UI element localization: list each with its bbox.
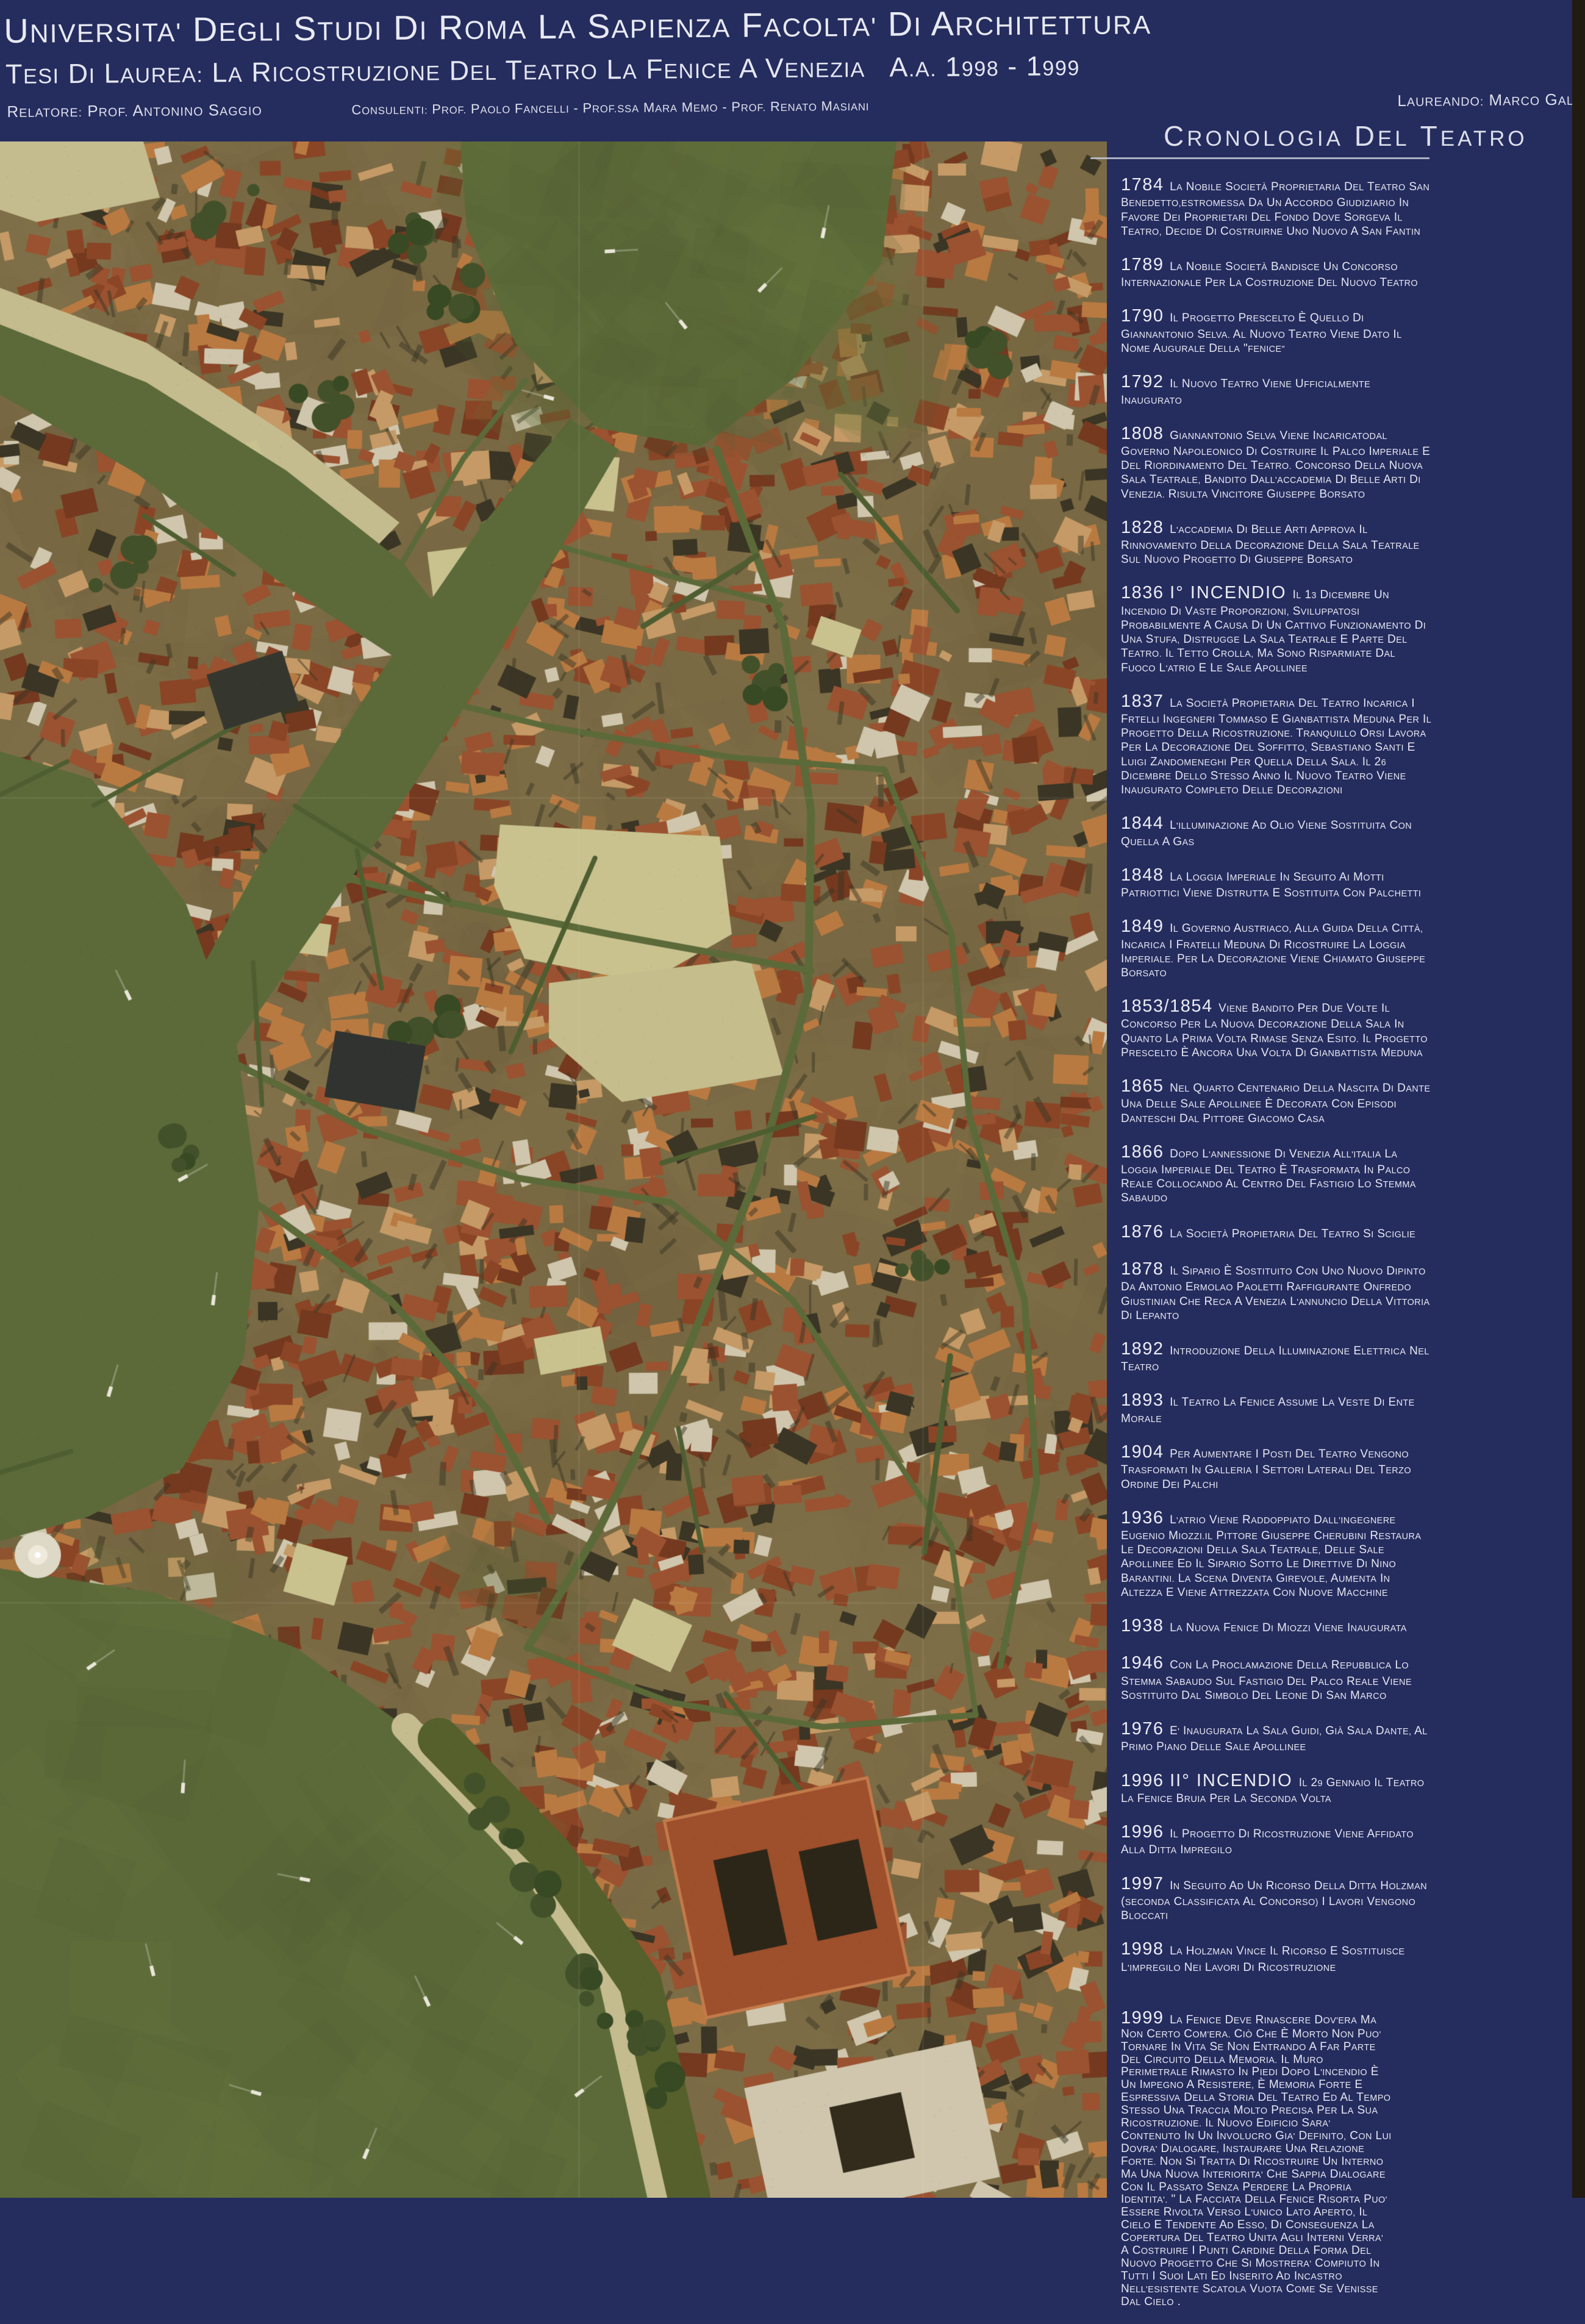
entry-year: 1790	[1121, 306, 1170, 326]
poster-right-edge	[1572, 0, 1585, 2198]
entry-year: 1938	[1121, 1616, 1170, 1636]
entry-year: 1808	[1121, 424, 1170, 443]
entry-year: 1844	[1121, 813, 1170, 833]
chronology-entry: 1996 II° INCENDIO IL 29 GENNAIO IL TEATR…	[1121, 1770, 1433, 1806]
entry-year: 1784	[1121, 175, 1170, 195]
laureando-credit: LAUREANDO: MARCO GALOFARI	[1397, 90, 1585, 110]
entry-year: 1999	[1121, 2008, 1170, 2028]
entry-label: II° INCENDIO	[1170, 1771, 1299, 1790]
entry-text: LA NUOVA FENICE DI MIOZZI VIENE INAUGURA…	[1170, 1621, 1407, 1634]
chronology-entry: 1836 I° INCENDIO IL 13 DICEMBRE UN INCEN…	[1121, 582, 1433, 674]
entry-year: 1848	[1121, 865, 1170, 885]
chronology-entry: 1792 IL NUOVO TEATRO VIENE UFFICIALMENTE…	[1121, 371, 1433, 407]
entry-year: 1996	[1121, 1822, 1170, 1842]
chronology-entry: 1936 L'ATRIO VIENE RADDOPPIATO DALL'INGE…	[1121, 1507, 1433, 1600]
university-title: UNIVERSITA' DEGLI STUDI DI ROMA LA SAPIE…	[4, 2, 1151, 51]
entry-year: 1936	[1121, 1508, 1170, 1528]
entry-text: LA FENICE DEVE RINASCERE DOV'ERA MA NON …	[1121, 2014, 1392, 2308]
entry-year: 1792	[1121, 372, 1170, 392]
chronology-entry: 1876 LA SOCIETÀ PROPIETARIA DEL TEATRO S…	[1121, 1221, 1433, 1243]
thesis-title: TESI DI LAUREA: LA RICOSTRUZIONE DEL TEA…	[5, 50, 1080, 90]
entry-text: LA SOCIETÀ PROPIETARIA DEL TEATRO INCARI…	[1121, 697, 1431, 796]
entry-label: I° INCENDIO	[1170, 583, 1293, 602]
chronology-entry: 1938 LA NUOVA FENICE DI MIOZZI VIENE INA…	[1121, 1615, 1433, 1637]
entry-year: 1946	[1121, 1653, 1170, 1673]
chronology-entry: 1998 LA HOLZMAN VINCE IL RICORSO E SOSTI…	[1121, 1939, 1433, 1975]
chronology-entry: 1892 INTRODUZIONE DELLA ILLUMINAZIONE EL…	[1121, 1339, 1433, 1375]
entry-year: 1865	[1121, 1076, 1170, 1096]
consulenti-credit: CONSULENTI: PROF. PAOLO FANCELLI - PROF.…	[351, 98, 869, 118]
chronology-entry: 1784 LA NOBILE SOCIETÀ PROPRIETARIA DEL …	[1121, 174, 1433, 238]
chronology-entry: 1849 IL GOVERNO AUSTRIACO, ALLA GUIDA DE…	[1121, 916, 1433, 980]
chronology-entry: 1878 IL SIPARIO È SOSTITUITO CON UNO NUO…	[1121, 1259, 1433, 1323]
chronology-entry: 1996 IL PROGETTO DI RICOSTRUZIONE VIENE …	[1121, 1822, 1433, 1857]
chronology-entry: 1844 L'ILLUMINAZIONE AD OLIO VIENE SOSTI…	[1121, 813, 1433, 849]
chronology-entry: 1866 DOPO L'ANNESSIONE DI VENEZIA ALL'IT…	[1121, 1142, 1433, 1206]
entry-year: 1853/1854	[1121, 996, 1218, 1016]
chronology-entry: 1976 E' INAUGURATA LA SALA GUIDI, GIÀ SA…	[1121, 1718, 1433, 1754]
entry-year: 1866	[1121, 1142, 1170, 1162]
chronology-entry: 1853/1854 VIENE BANDITO PER DUE VOLTE IL…	[1121, 996, 1433, 1060]
chronology-list: 1784 LA NOBILE SOCIETÀ PROPRIETARIA DEL …	[1121, 174, 1433, 2324]
chronology-entry: 1789 LA NOBILE SOCIETÀ BANDISCE UN CONCO…	[1121, 254, 1433, 290]
chronology-entry: 1904 PER AUMENTARE I POSTI DEL TEATRO VE…	[1121, 1442, 1433, 1492]
entry-year: 1876	[1121, 1222, 1170, 1242]
title-underline	[1090, 157, 1429, 159]
chronology-entry: 1848 LA LOGGIA IMPERIALE IN SEGUITO AI M…	[1121, 865, 1433, 901]
chronology-title: CRONOLOGIA DEL TEATRO	[1164, 120, 1528, 152]
chronology-entry: 1790 IL PROGETTO PRESCELTO È QUELLO DI G…	[1121, 306, 1433, 356]
chronology-entry: 1837 LA SOCIETÀ PROPIETARIA DEL TEATRO I…	[1121, 691, 1433, 797]
chronology-entry: 1808 GIANNANTONIO SELVA VIENE INCARICATO…	[1121, 423, 1433, 501]
venice-aerial-photo	[0, 141, 1107, 2198]
entry-year: 1904	[1121, 1442, 1170, 1462]
chronology-entry: 1865 NEL QUARTO CENTENARIO DELLA NASCITA…	[1121, 1076, 1433, 1126]
entry-year: 1997	[1121, 1874, 1170, 1893]
chronology-entry: 1893 IL TEATRO LA FENICE ASSUME LA VESTE…	[1121, 1390, 1433, 1426]
entry-year: 1836	[1121, 583, 1170, 602]
entry-text: LA SOCIETÀ PROPIETARIA DEL TEATRO SI SCI…	[1170, 1228, 1415, 1240]
chronology-entry: 1999 LA FENICE DEVE RINASCERE DOV'ERA MA…	[1121, 2009, 1392, 2308]
entry-year: 1976	[1121, 1719, 1170, 1739]
entry-year: 1828	[1121, 518, 1170, 537]
chronology-entry: 1946 CON LA PROCLAMAZIONE DELLA REPUBBLI…	[1121, 1653, 1433, 1703]
entry-year: 1892	[1121, 1339, 1170, 1359]
entry-year: 1996	[1121, 1771, 1170, 1790]
entry-year: 1789	[1121, 255, 1170, 274]
entry-year: 1849	[1121, 917, 1170, 936]
chronology-entry: 1997 IN SEGUITO AD UN RICORSO DELLA DITT…	[1121, 1873, 1433, 1923]
entry-year: 1878	[1121, 1259, 1170, 1279]
entry-year: 1893	[1121, 1390, 1170, 1410]
entry-year: 1998	[1121, 1939, 1170, 1959]
chronology-entry: 1828 L'ACCADEMIA DI BELLE ARTI APPROVA I…	[1121, 517, 1433, 567]
relatore-credit: RELATORE: PROF. ANTONINO SAGGIO	[7, 101, 262, 121]
entry-year: 1837	[1121, 692, 1170, 711]
